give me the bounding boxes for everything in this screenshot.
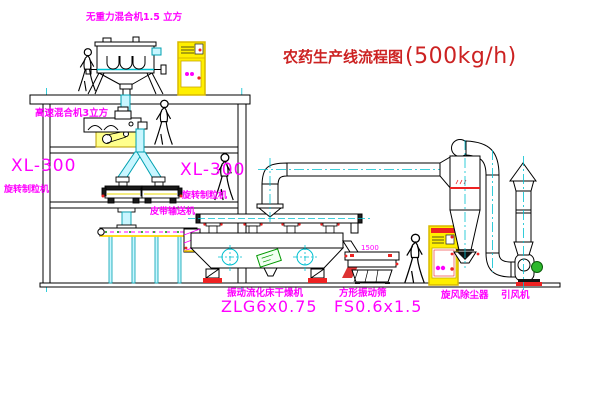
process-flow-diagram: 农药生产线流程图 (500kg/h) 无重力混合机1.5 立方 高速混合机3立方…: [0, 0, 600, 403]
title-text: 农药生产线流程图: [283, 50, 403, 68]
label-sieve-model: FS0.6x1.5: [334, 299, 422, 315]
floor-slab-3: [50, 202, 238, 208]
valve-icon: [152, 48, 161, 55]
label-cyclone: 旋风除尘器: [441, 291, 489, 301]
label-granulator-mid-model: XL-300: [180, 162, 245, 179]
fluid-bed-dryer: [188, 214, 370, 283]
roof-slab: [30, 95, 250, 104]
label-dryer-model: ZLG6x0.75: [221, 299, 318, 315]
gravityless-mixer: [86, 37, 166, 95]
diagram-title: 农药生产线流程图 (500kg/h): [283, 46, 517, 68]
induced-draft-fan: [515, 254, 543, 286]
exhaust-duct: [257, 158, 455, 222]
title-capacity: (500kg/h): [405, 46, 517, 68]
control-cabinet-roof: [178, 42, 205, 95]
granulator-left: [102, 177, 146, 203]
label-belt-conveyor: 皮带输送机: [150, 208, 195, 217]
label-granulator-left-name: 旋转制粒机: [4, 186, 49, 195]
fan-motor: [532, 262, 543, 273]
label-granulator-mid-name: 旋转制粒机: [182, 192, 227, 201]
discharge-pipe: [117, 208, 136, 229]
vibrating-sieve: [342, 252, 399, 284]
label-fan: 引风机: [501, 291, 530, 301]
granulator-right: [142, 177, 183, 203]
person-figure: [405, 234, 424, 282]
control-cabinet-ground: [429, 226, 458, 285]
label-gravityless-mixer: 无重力混合机1.5 立方: [86, 13, 182, 23]
label-high-speed-mixer: 高速混合机3立方: [35, 109, 108, 119]
dryer-nozzles: [203, 223, 339, 233]
label-granulator-left-model: XL-300: [11, 158, 76, 175]
person-figure: [155, 100, 173, 144]
ground-line: [40, 283, 560, 287]
label-sieve-dimension: 1500: [361, 245, 379, 252]
